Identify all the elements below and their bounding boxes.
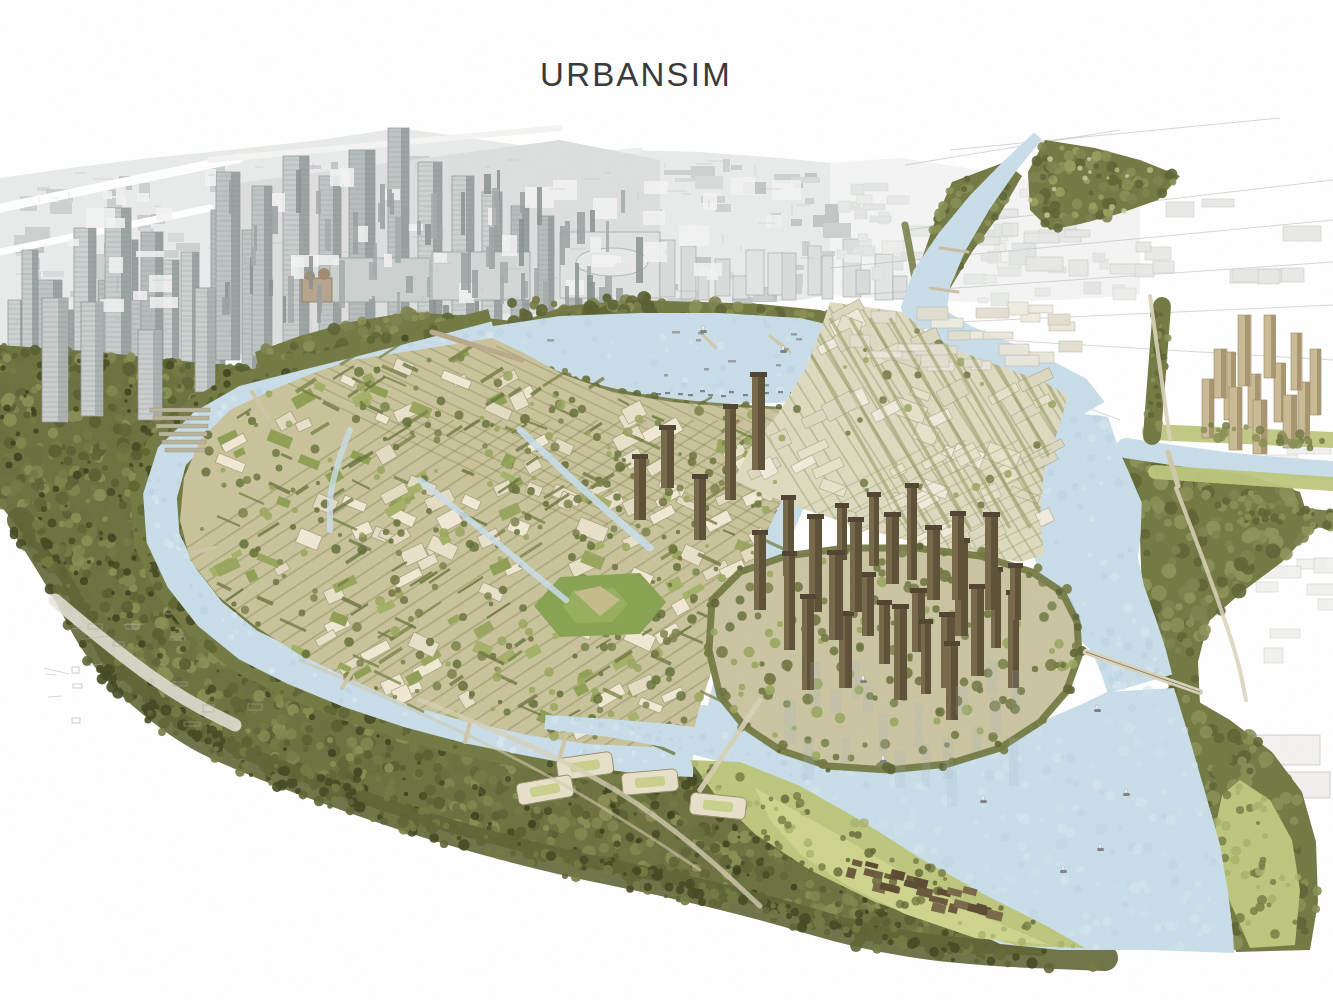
svg-text:URBANSIM: URBANSIM (540, 56, 732, 93)
